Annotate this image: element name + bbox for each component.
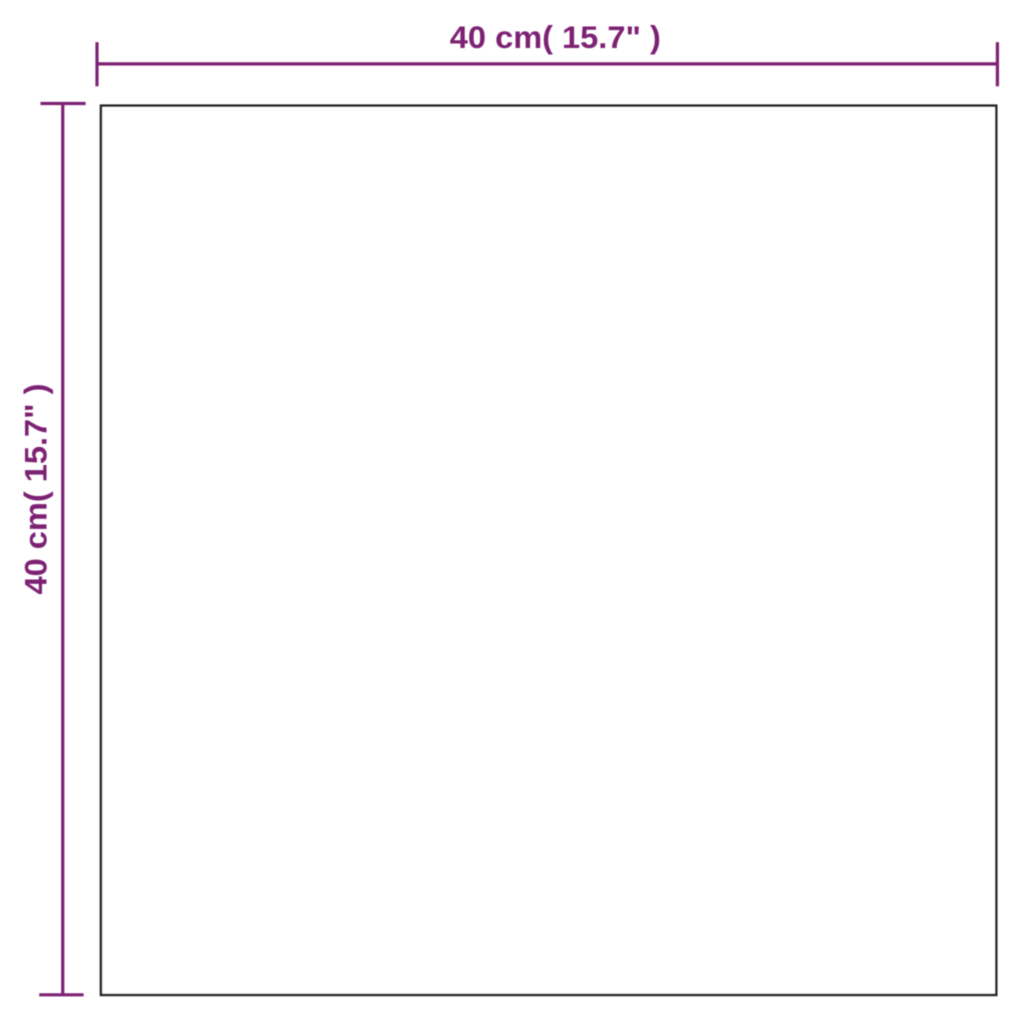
svg-text:40 cm( 15.7" ): 40 cm( 15.7" ) bbox=[18, 384, 54, 595]
svg-text:40 cm( 15.7" ): 40 cm( 15.7" ) bbox=[450, 19, 661, 55]
